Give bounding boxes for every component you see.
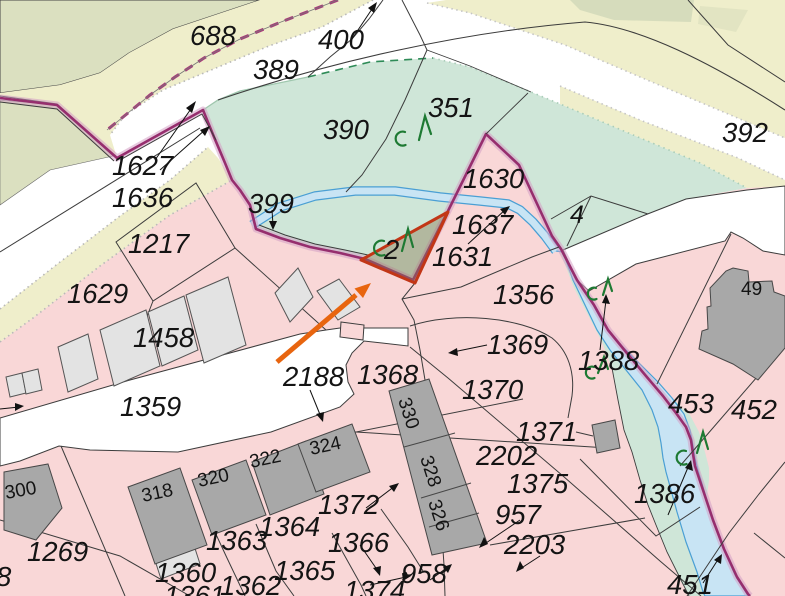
svg-text:1636: 1636 bbox=[112, 182, 174, 213]
svg-text:1630: 1630 bbox=[463, 163, 525, 194]
svg-text:2203: 2203 bbox=[503, 529, 566, 560]
svg-text:1269: 1269 bbox=[27, 536, 88, 567]
svg-text:1359: 1359 bbox=[120, 391, 181, 422]
svg-text:400: 400 bbox=[318, 24, 365, 55]
svg-text:390: 390 bbox=[323, 114, 370, 145]
svg-text:1363: 1363 bbox=[206, 525, 268, 556]
svg-text:392: 392 bbox=[722, 117, 768, 148]
svg-text:2202: 2202 bbox=[475, 440, 537, 471]
svg-text:957: 957 bbox=[495, 499, 543, 530]
svg-text:389: 389 bbox=[253, 54, 299, 85]
svg-text:1364: 1364 bbox=[259, 511, 320, 542]
svg-text:2: 2 bbox=[383, 234, 399, 265]
svg-text:1217: 1217 bbox=[128, 228, 191, 259]
svg-text:958: 958 bbox=[401, 558, 448, 589]
svg-text:1372: 1372 bbox=[318, 489, 379, 520]
svg-text:688: 688 bbox=[190, 20, 237, 51]
svg-text:351: 351 bbox=[428, 92, 474, 123]
svg-text:1368: 1368 bbox=[357, 359, 419, 390]
svg-text:4: 4 bbox=[570, 201, 584, 229]
svg-text:1374: 1374 bbox=[344, 575, 405, 596]
svg-text:1458: 1458 bbox=[133, 322, 195, 353]
svg-text:1386: 1386 bbox=[634, 478, 696, 509]
svg-text:49: 49 bbox=[741, 279, 762, 300]
svg-text:1627: 1627 bbox=[112, 150, 175, 181]
svg-text:1631: 1631 bbox=[432, 241, 493, 272]
svg-text:1388: 1388 bbox=[578, 345, 640, 376]
svg-text:8: 8 bbox=[0, 561, 12, 592]
svg-text:1356: 1356 bbox=[493, 279, 555, 310]
svg-text:451: 451 bbox=[667, 569, 713, 596]
svg-text:1365: 1365 bbox=[274, 555, 336, 586]
svg-text:1370: 1370 bbox=[462, 374, 524, 405]
svg-text:1362: 1362 bbox=[220, 570, 281, 596]
svg-text:1637: 1637 bbox=[452, 209, 515, 240]
svg-text:1369: 1369 bbox=[487, 329, 548, 360]
svg-text:453: 453 bbox=[668, 388, 715, 419]
svg-text:2188: 2188 bbox=[282, 361, 345, 392]
svg-text:452: 452 bbox=[731, 394, 777, 425]
svg-text:1375: 1375 bbox=[507, 468, 569, 499]
svg-text:1629: 1629 bbox=[67, 278, 128, 309]
svg-text:1366: 1366 bbox=[328, 527, 390, 558]
svg-text:1361: 1361 bbox=[164, 580, 225, 596]
svg-text:399: 399 bbox=[248, 188, 294, 219]
